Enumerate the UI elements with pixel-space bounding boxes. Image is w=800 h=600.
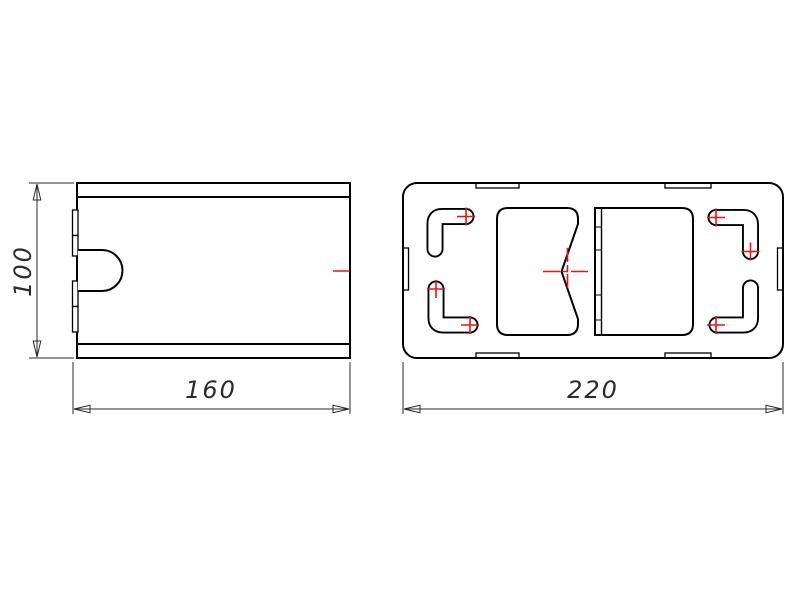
cutout-right-rect [595,208,693,335]
dimension-text-160: 160 [185,376,237,404]
dimension-height-100: 100 [9,183,74,358]
technical-drawing: 100 160 [0,0,800,600]
tab [73,210,79,236]
dimension-text-220: 220 [567,376,619,404]
tab [73,281,79,307]
tab [73,307,79,333]
drawing-canvas: 100 160 [0,0,800,600]
dimension-width-220: 220 [403,362,783,414]
dimension-width-160: 160 [73,362,350,414]
tab [73,236,79,257]
front-view [73,183,351,358]
dimension-text-100: 100 [9,245,37,297]
front-d-notch [78,250,123,291]
top-view [403,183,783,358]
